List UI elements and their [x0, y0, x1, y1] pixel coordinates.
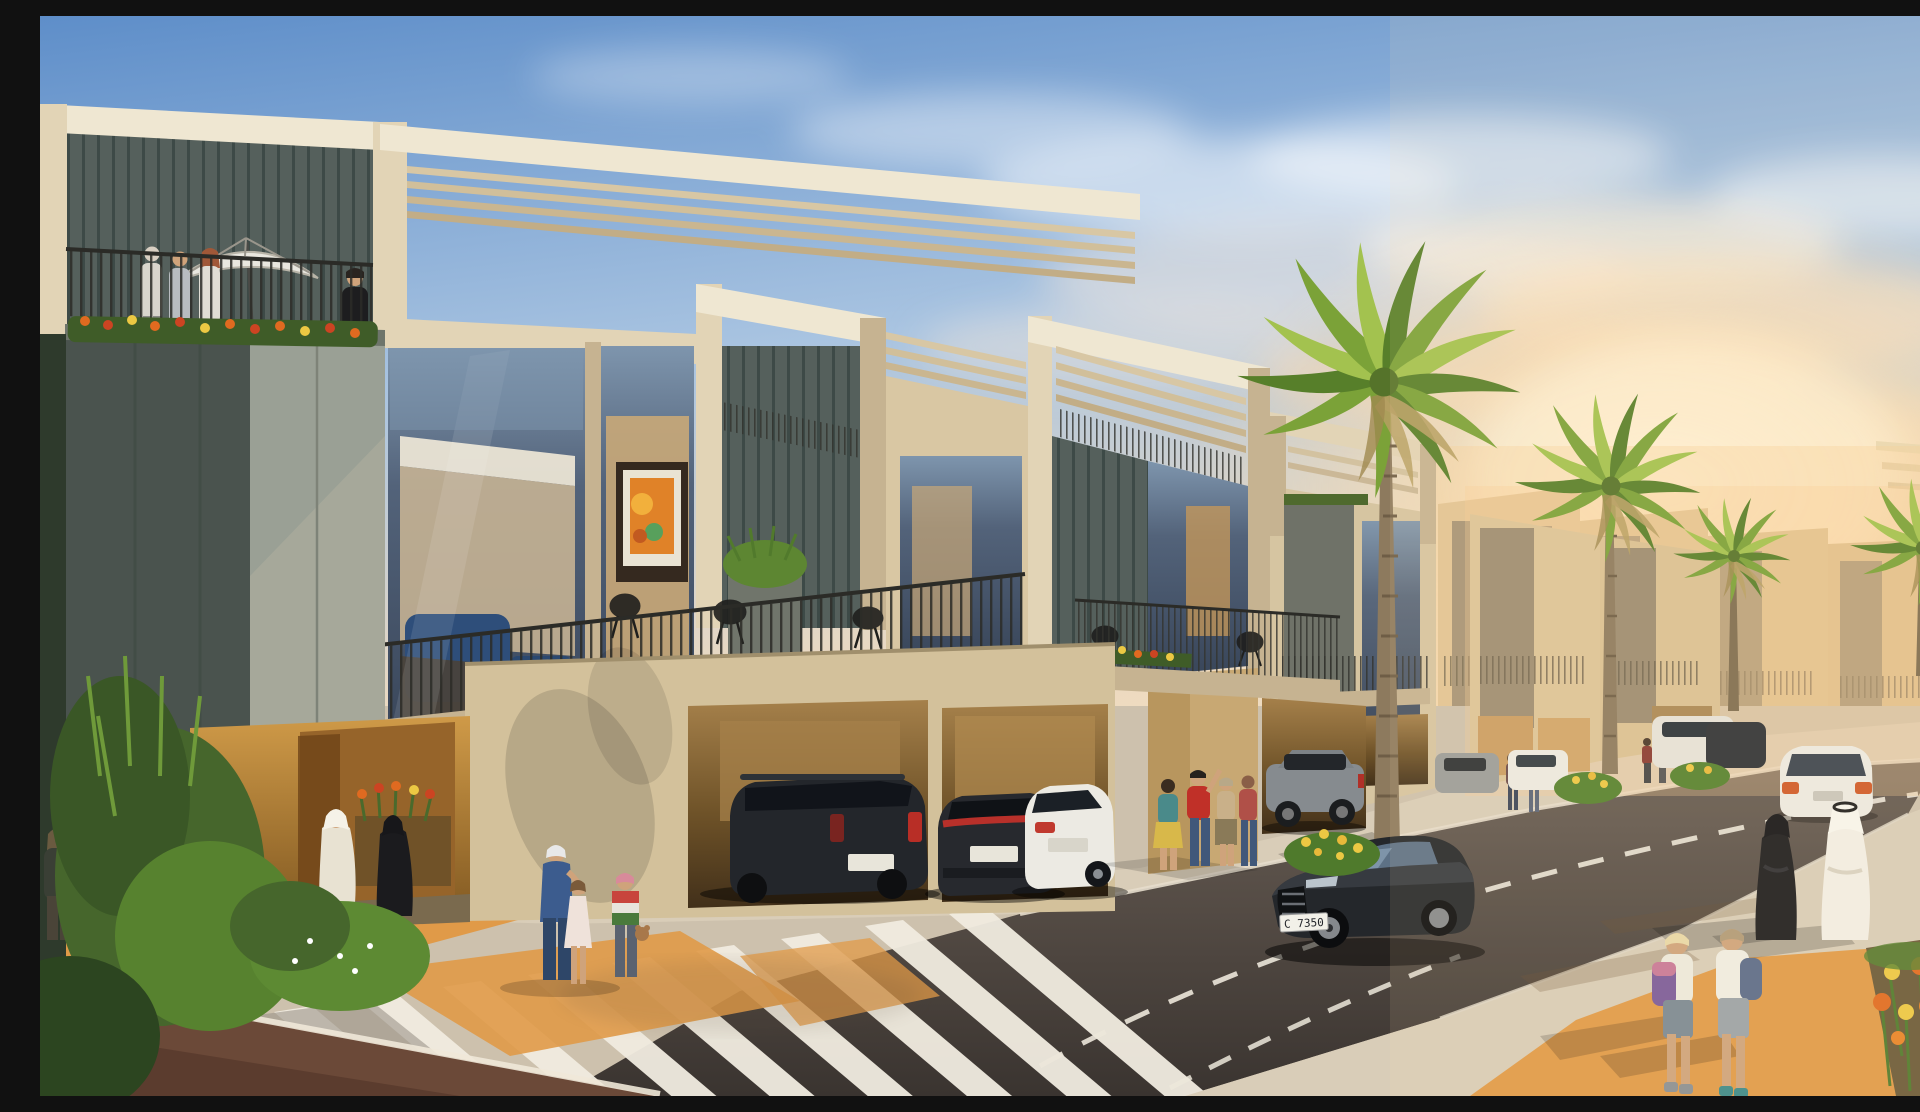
license-plate: C 7350: [1280, 913, 1329, 932]
warm-haze: [1390, 16, 1920, 1096]
architectural-rendering: C 7350: [40, 16, 1920, 1096]
scene-canvas: C 7350: [40, 16, 1920, 1096]
painting-art: [630, 478, 674, 554]
plate-text: C 7350: [1284, 916, 1324, 931]
frame-pillar: [373, 122, 407, 336]
